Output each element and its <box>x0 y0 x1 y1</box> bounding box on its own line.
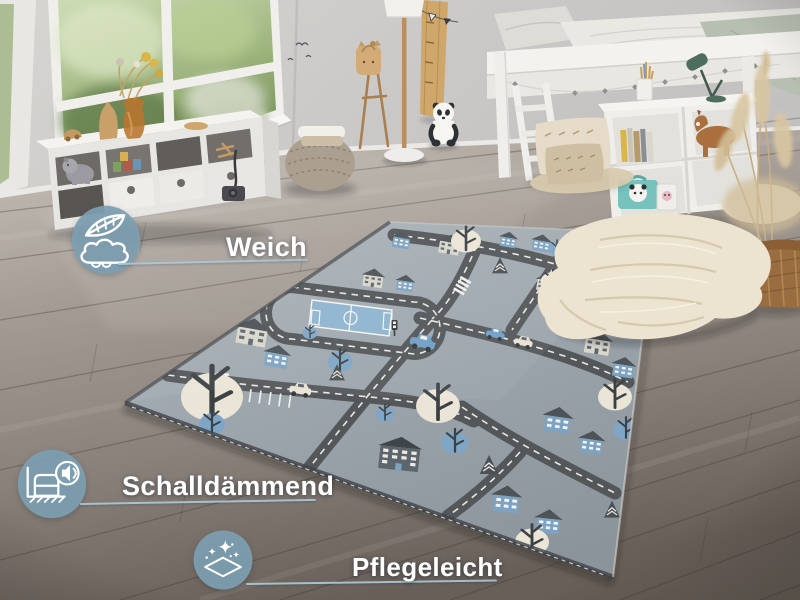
sparkle-clean-icon <box>192 529 254 591</box>
callout-label-schalldaemmend: Schalldämmend <box>122 473 334 500</box>
feather-cloud-icon <box>70 204 142 276</box>
callout-label-weich: Weich <box>226 234 307 261</box>
callout-weich: Weich <box>70 204 330 284</box>
callout-schalldaemmend: Schalldämmend <box>16 448 336 528</box>
callout-pflegeleicht: Pflegeleicht <box>192 529 522 599</box>
sound-dampening-icon <box>16 448 88 520</box>
product-hero-image: Weich Schalldämmend Pflegeleicht <box>0 0 800 600</box>
callout-label-pflegeleicht: Pflegeleicht <box>352 554 503 580</box>
